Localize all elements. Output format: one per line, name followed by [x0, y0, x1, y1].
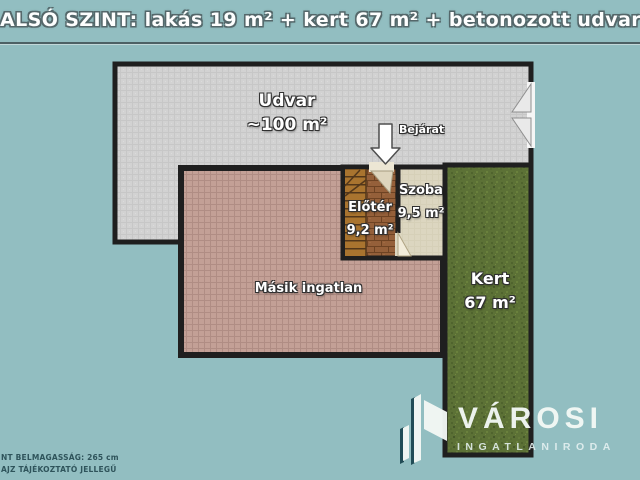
- logo-tagline-text: INGATLANIRODA: [457, 441, 616, 453]
- note-disclaimer: AJZ TÁJÉKOZTATÓ JELLEGŰ: [1, 465, 117, 474]
- udvar-label: Udvar ~100 m²: [217, 89, 357, 137]
- udvar-name: Udvar: [217, 89, 357, 113]
- szoba-label: Szoba 9,5 m²: [394, 179, 448, 225]
- kert-label: Kert 67 m²: [453, 267, 527, 315]
- note-ceiling-height: NT BELMAGASSÁG: 265 cm: [1, 453, 119, 462]
- page-title: ALSÓ SZINT: lakás 19 m² + kert 67 m² + b…: [0, 9, 640, 31]
- kert-name: Kert: [453, 267, 527, 291]
- szoba-name: Szoba: [394, 179, 448, 202]
- szoba-area: 9,5 m²: [394, 202, 448, 225]
- kert-area: 67 m²: [453, 291, 527, 315]
- logo-icon: [400, 394, 447, 465]
- masik-ingatlan-label: Másik ingatlan: [236, 281, 381, 296]
- logo-brand-text: VÁROSI: [458, 402, 603, 436]
- floorplan-canvas: ALSÓ SZINT: lakás 19 m² + kert 67 m² + b…: [0, 0, 640, 480]
- udvar-area: ~100 m²: [217, 113, 357, 137]
- entrance-label: Bejárat: [399, 123, 444, 136]
- title-divider: [0, 42, 640, 45]
